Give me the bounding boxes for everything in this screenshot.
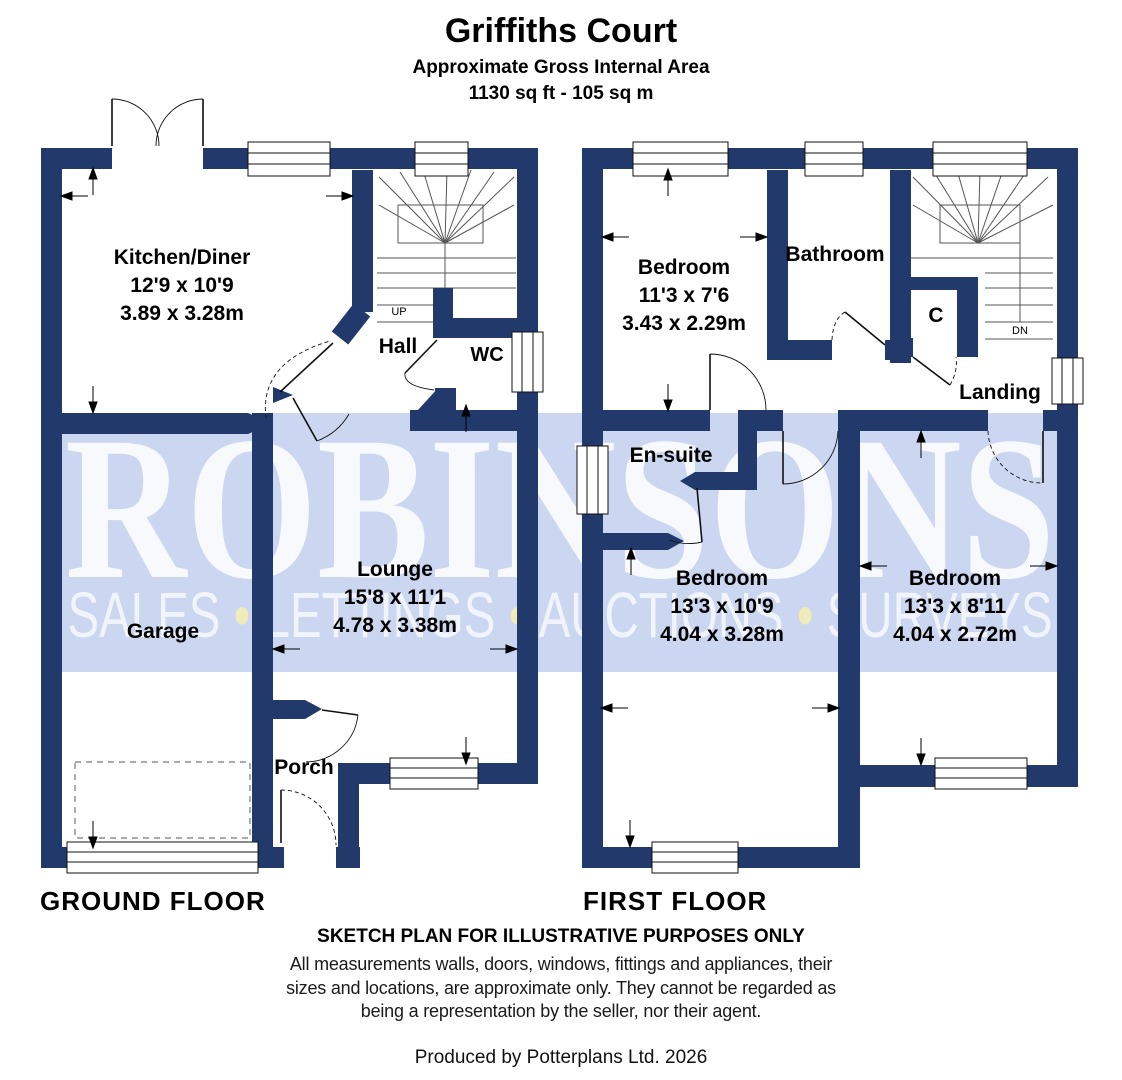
room-label-hall: Hall — [379, 333, 418, 361]
room-label-cupboard: C — [928, 302, 943, 330]
window — [248, 142, 330, 176]
stairs-label-dn: DN — [1010, 325, 1030, 338]
floor-plan-graphics: ROBINSONS SALES•LETTINGS•AUCTIONS•SURVEY… — [0, 0, 1122, 1080]
window — [933, 142, 1027, 176]
producer-credit: Produced by Potterplans Ltd. 2026 — [415, 1047, 708, 1069]
garage-door — [67, 842, 258, 873]
room-label-ensuite: En-suite — [630, 442, 713, 470]
window — [390, 758, 478, 789]
window — [805, 142, 863, 176]
first-floor-label: FIRST FLOOR — [583, 886, 767, 917]
window — [652, 842, 738, 873]
room-label-lounge: Lounge 15'8 x 11'1 4.78 x 3.38m — [333, 556, 457, 640]
room-label-wc: WC — [470, 341, 503, 369]
window — [577, 446, 608, 514]
disclaimer-title: SKETCH PLAN FOR ILLUSTRATIVE PURPOSES ON… — [317, 926, 805, 948]
room-label-bathroom: Bathroom — [785, 241, 884, 269]
tagline-dot: • — [234, 579, 251, 651]
tagline-dot: • — [797, 579, 814, 651]
room-label-porch: Porch — [274, 754, 334, 782]
area-value: 1130 sq ft - 105 sq m — [469, 83, 654, 105]
room-label-landing: Landing — [959, 379, 1041, 407]
room-label-bedroom2: Bedroom 13'3 x 10'9 4.04 x 3.28m — [660, 565, 784, 649]
room-label-kitchen: Kitchen/Diner 12'9 x 10'9 3.89 x 3.28m — [114, 244, 251, 328]
room-label-bedroom1: Bedroom 11'3 x 7'6 3.43 x 2.29m — [622, 254, 746, 338]
window — [415, 142, 468, 176]
stairs-label-up: UP — [389, 306, 408, 319]
ground-floor-label: GROUND FLOOR — [40, 886, 266, 917]
window — [512, 332, 543, 392]
property-name: Griffiths Court — [445, 12, 677, 51]
area-heading: Approximate Gross Internal Area — [412, 57, 709, 79]
room-label-bedroom3: Bedroom 13'3 x 8'11 4.04 x 2.72m — [893, 565, 1017, 649]
disclaimer-text: All measurements walls, doors, windows, … — [286, 953, 836, 1024]
garage-parking-outline — [75, 762, 250, 838]
floor-plan-page: ROBINSONS SALES•LETTINGS•AUCTIONS•SURVEY… — [0, 0, 1122, 1080]
window — [633, 142, 728, 176]
window — [935, 758, 1027, 789]
window — [1052, 358, 1083, 404]
room-label-garage: Garage — [127, 618, 199, 646]
